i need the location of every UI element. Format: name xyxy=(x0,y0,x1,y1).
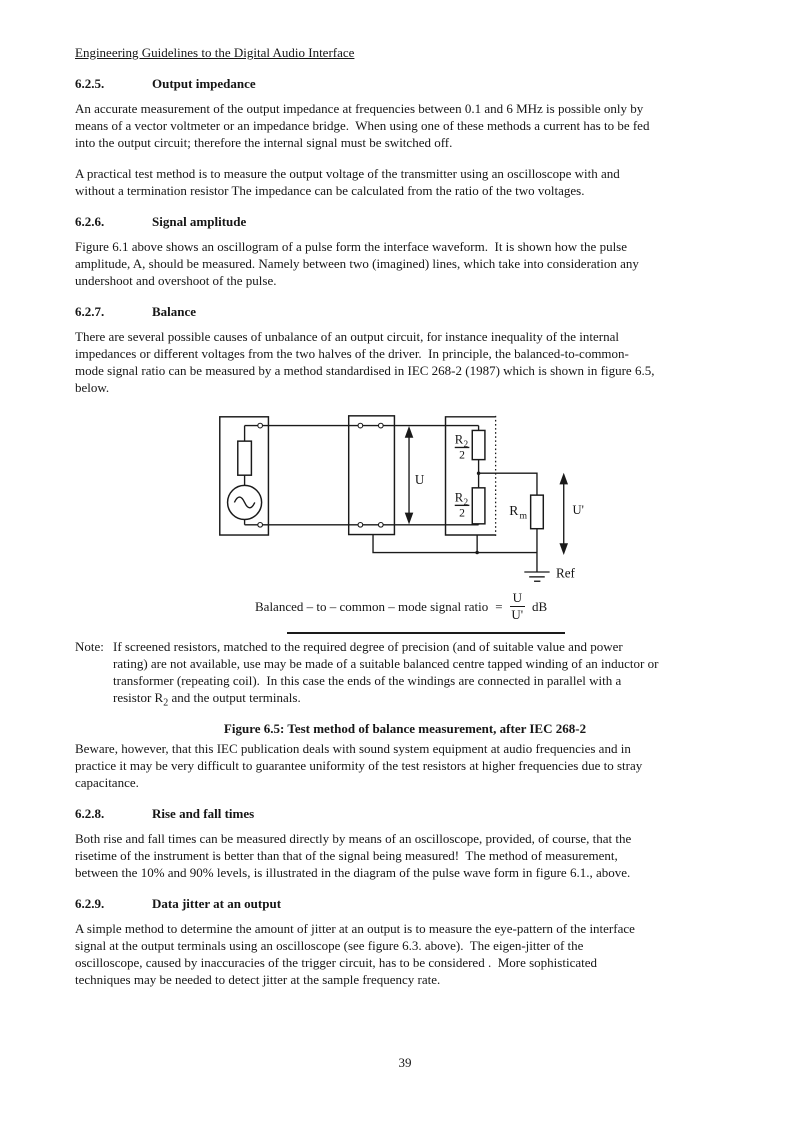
formula-unit: dB xyxy=(532,598,547,615)
terminal-dots xyxy=(258,423,383,527)
interface-box xyxy=(349,416,395,535)
svg-text:R: R xyxy=(455,490,464,504)
section-number: 6.2.6. xyxy=(75,213,152,230)
u-arrow: U xyxy=(405,426,425,524)
note-label: Note: xyxy=(75,638,104,655)
body-paragraph: Figure 6.1 above shows an oscillogram of… xyxy=(75,238,735,289)
tap-wire xyxy=(479,473,537,495)
body-paragraph: Beware, however, that this IEC publicati… xyxy=(75,740,735,791)
fraction-numerator: U xyxy=(510,591,525,607)
svg-text:R: R xyxy=(455,433,464,447)
body-paragraph: There are several possible causes of unb… xyxy=(75,328,735,396)
svg-text:m: m xyxy=(519,510,527,521)
figure-caption: Figure 6.5: Test method of balance measu… xyxy=(75,720,735,737)
figure-6-5: U R 2 2 R 2 xyxy=(75,410,735,740)
formula-fraction: U U' xyxy=(510,591,525,621)
r2-half-bottom-resistor xyxy=(472,488,485,524)
section-number: 6.2.7. xyxy=(75,303,152,320)
body-paragraph: A simple method to determine the amount … xyxy=(75,920,735,988)
figure-note: Note: If screened resistors, matched to … xyxy=(75,638,735,706)
section-title: Balance xyxy=(152,304,196,319)
u-prime-arrow: U' xyxy=(559,473,583,555)
r2-half-top-resistor xyxy=(472,430,485,459)
load-network-box: R 2 2 R 2 2 xyxy=(446,416,496,536)
generator-box xyxy=(220,417,269,535)
page-number: 39 xyxy=(75,1054,735,1071)
equals-sign: = xyxy=(495,598,502,615)
formula-lhs: Balanced – to – common – mode signal rat… xyxy=(255,598,488,615)
doc-header-title: Engineering Guidelines to the Digital Au… xyxy=(75,44,735,61)
section-number: 6.2.8. xyxy=(75,805,152,822)
r2-top-label: R 2 2 xyxy=(455,433,470,462)
note-text: If screened resistors, matched to the re… xyxy=(113,639,658,705)
ref-label: Ref xyxy=(556,565,576,580)
ground-icon xyxy=(524,572,549,581)
body-paragraph: Both rise and fall times can be measured… xyxy=(75,830,735,881)
svg-text:2: 2 xyxy=(459,449,465,462)
u-label: U xyxy=(415,472,425,487)
section-heading-6-2-6: 6.2.6.Signal amplitude xyxy=(75,213,735,230)
u-prime-label: U' xyxy=(572,503,583,517)
section-number: 6.2.9. xyxy=(75,895,152,912)
section-heading-6-2-5: 6.2.5.Output impedance xyxy=(75,75,735,92)
note-divider-rule xyxy=(287,632,565,634)
document-page: Engineering Guidelines to the Digital Au… xyxy=(0,0,793,1122)
rm-resistor: R m xyxy=(509,495,543,572)
balance-test-circuit-diagram: U R 2 2 R 2 xyxy=(210,410,610,590)
section-number: 6.2.5. xyxy=(75,75,152,92)
body-paragraph: An accurate measurement of the output im… xyxy=(75,100,735,151)
balance-ratio-formula: Balanced – to – common – mode signal rat… xyxy=(255,591,547,621)
rm-label: R xyxy=(509,503,519,518)
return-rail xyxy=(373,535,537,554)
section-heading-6-2-7: 6.2.7.Balance xyxy=(75,303,735,320)
section-heading-6-2-9: 6.2.9.Data jitter at an output xyxy=(75,895,735,912)
source-resistor xyxy=(238,441,252,475)
section-title: Rise and fall times xyxy=(152,806,254,821)
section-title: Signal amplitude xyxy=(152,214,246,229)
r2-bottom-label: R 2 2 xyxy=(455,490,470,519)
body-paragraph: A practical test method is to measure th… xyxy=(75,165,735,199)
section-heading-6-2-8: 6.2.8.Rise and fall times xyxy=(75,805,735,822)
section-title: Output impedance xyxy=(152,76,256,91)
svg-text:2: 2 xyxy=(459,507,465,520)
fraction-denominator: U' xyxy=(510,607,525,622)
section-title: Data jitter at an output xyxy=(152,896,281,911)
